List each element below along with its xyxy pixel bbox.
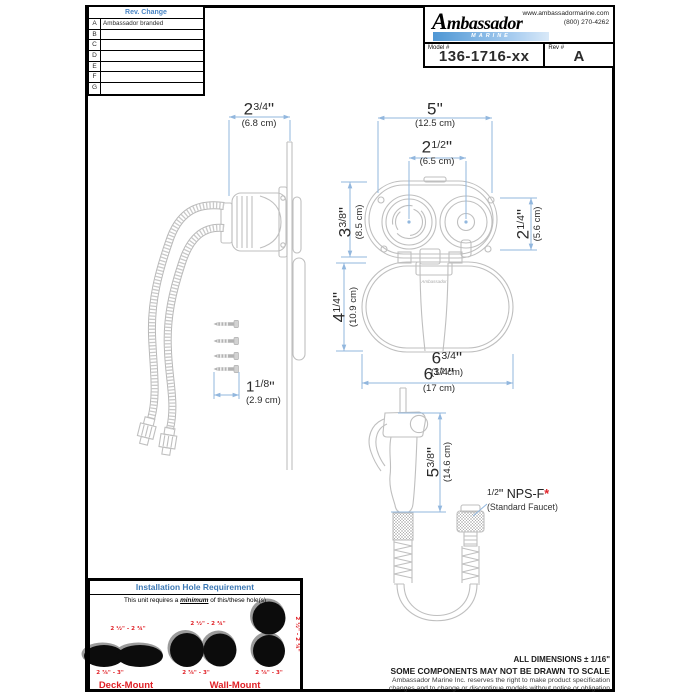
tolerance-note: ALL DIMENSIONS ± 1/16" (389, 655, 610, 666)
standard-faucet-note: (Standard Faucet) (487, 502, 558, 512)
deck-hole-length-label: 2 ⅞" - 3" (96, 670, 124, 676)
table-row: E (89, 62, 203, 73)
disclaimer-line-2: changes and to change or discontinue mod… (389, 685, 610, 693)
table-row: F (89, 72, 203, 83)
disclaimer-line-1: Ambassador Marine Inc. reserves the righ… (389, 677, 610, 685)
table-row: C (89, 40, 203, 51)
table-row: G (89, 83, 203, 94)
install-box-subtitle: This unit requires a minimum of this/the… (90, 597, 300, 604)
faucet-thread-callout: 1/2" NPS-F* (Standard Faucet) (487, 487, 558, 512)
phone-text: (800) 270-4262 (523, 19, 609, 28)
model-number-value: 136-1716-xx (425, 48, 543, 65)
table-row: B (89, 30, 203, 41)
dim-sprayer-height: 53/8" (14.6 cm) (423, 442, 453, 482)
spec-sheet-page: Rev. Change AAmbassador branded B C D E … (0, 0, 700, 700)
dim-lid-height: 33/8" (8.5 cm) (335, 205, 365, 240)
footer-notes: ALL DIMENSIONS ± 1/16" SOME COMPONENTS M… (389, 655, 610, 693)
wall-mount-label: Wall-Mount (210, 680, 261, 691)
brand-logo-marine-bar: MARINE (433, 32, 549, 41)
deck-hole-width-label: 2 ½" - 2 ¾" (110, 626, 145, 632)
table-row: AAmbassador branded (89, 19, 203, 30)
title-block: Ambassador MARINE www.ambassadormarine.c… (423, 5, 615, 68)
strap-logo-text: Ambassador (418, 279, 450, 284)
dim-base-width-duplicate: 63/4" (17 cm) (423, 364, 455, 394)
rev-value: A (545, 48, 613, 65)
deck-mount-label: Deck-Mount (99, 680, 153, 691)
dim-hole-spacing: 21/2" (6.5 cm) (420, 137, 455, 167)
footnote-asterisk: * (544, 487, 549, 501)
table-row: D (89, 51, 203, 62)
wall-hole-length-label: 2 ⅞" - 3" (182, 670, 210, 676)
rev-change-table: Rev. Change AAmbassador branded B C D E … (87, 5, 205, 96)
scale-note: SOME COMPONENTS MAY NOT BE DRAWN TO SCAL… (389, 666, 610, 677)
dim-opening-height: 21/4" (5.6 cm) (513, 207, 543, 242)
install-box-title: Installation Hole Requirement (90, 582, 300, 595)
dim-side-depth: 23/4" (6.8 cm) (242, 99, 277, 129)
wall-vertical-hole-width-label: 2 ½" - 2 ¾" (294, 616, 300, 651)
website-text: www.ambassadormarine.com (523, 10, 609, 19)
wall-vertical-hole-length-label: 2 ⅞" - 3" (255, 670, 283, 676)
dim-overall-width: 5" (12.5 cm) (415, 99, 455, 129)
wall-hole-width-label: 2 ½" - 2 ¾" (190, 621, 225, 627)
dim-cup-height: 41/4" (10.9 cm) (329, 287, 359, 327)
rev-table-title: Rev. Change (89, 7, 203, 19)
dim-screw-length: 11/8" (2.9 cm) (246, 377, 281, 406)
